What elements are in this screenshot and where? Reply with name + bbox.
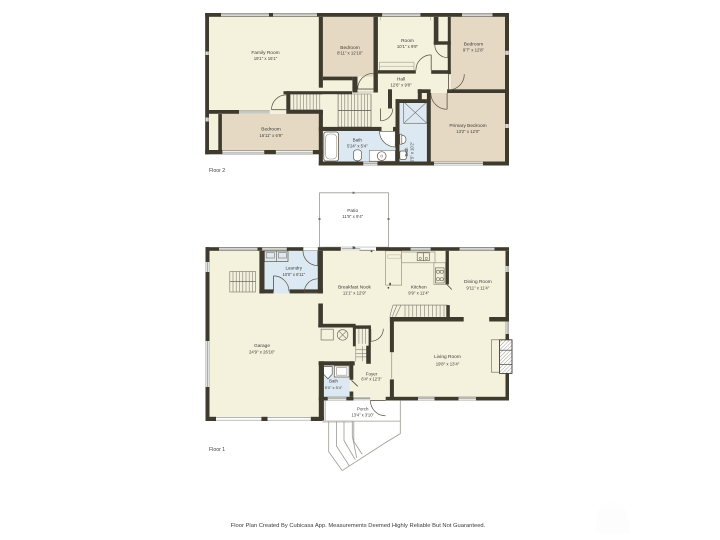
svg-text:12'6" x 9'8": 12'6" x 9'8" bbox=[390, 82, 412, 87]
svg-text:Dining Room: Dining Room bbox=[464, 279, 492, 285]
svg-text:Living Room: Living Room bbox=[434, 354, 461, 360]
svg-text:5'5" x 10'2": 5'5" x 10'2" bbox=[409, 141, 414, 162]
svg-text:Family Room: Family Room bbox=[251, 50, 279, 56]
svg-text:19'1" x 16'1": 19'1" x 16'1" bbox=[254, 56, 278, 61]
svg-text:11'1" x 12'9": 11'1" x 12'9" bbox=[343, 290, 367, 295]
svg-text:13'2" x 12'0": 13'2" x 12'0" bbox=[456, 129, 480, 134]
svg-text:Garage: Garage bbox=[254, 343, 270, 349]
svg-text:9'11" x 11'4": 9'11" x 11'4" bbox=[466, 286, 489, 291]
svg-text:19'8" x 13'4": 19'8" x 13'4" bbox=[436, 361, 460, 366]
svg-text:Floor 2: Floor 2 bbox=[209, 168, 225, 174]
svg-text:13'4" x 3'10": 13'4" x 3'10" bbox=[351, 412, 374, 417]
svg-text:Bath: Bath bbox=[353, 138, 363, 143]
svg-text:9'9" x 11'4": 9'9" x 11'4" bbox=[408, 290, 429, 295]
svg-text:6'4" x 12'3": 6'4" x 12'3" bbox=[361, 376, 382, 381]
svg-text:8'11" x 12'10": 8'11" x 12'10" bbox=[337, 51, 363, 56]
svg-text:Kitchen: Kitchen bbox=[411, 284, 427, 290]
svg-text:Breakfast Nook: Breakfast Nook bbox=[338, 284, 371, 290]
svg-text:24'9" x 26'10": 24'9" x 26'10" bbox=[249, 350, 275, 355]
svg-text:5'0" x 5'4": 5'0" x 5'4" bbox=[325, 385, 343, 390]
svg-text:5'24" x 5'4": 5'24" x 5'4" bbox=[347, 144, 368, 149]
svg-text:10'0" x 6'11": 10'0" x 6'11" bbox=[282, 272, 305, 277]
svg-text:Laundry: Laundry bbox=[285, 265, 302, 270]
svg-text:9'7" x 12'8": 9'7" x 12'8" bbox=[463, 47, 485, 52]
svg-text:Floor Plan Created By Cubicasa: Floor Plan Created By Cubicasa App. Meas… bbox=[231, 523, 486, 529]
svg-text:Bath: Bath bbox=[329, 379, 338, 384]
svg-text:Bath: Bath bbox=[404, 147, 409, 157]
svg-text:10'1" x 9'9": 10'1" x 9'9" bbox=[397, 44, 419, 49]
svg-text:16'11" x 6'9": 16'11" x 6'9" bbox=[259, 133, 283, 138]
svg-text:Floor 1: Floor 1 bbox=[209, 447, 225, 453]
svg-text:Bedroom: Bedroom bbox=[261, 127, 280, 133]
svg-text:11'9" x 9'4": 11'9" x 9'4" bbox=[342, 214, 363, 219]
svg-text:Porch: Porch bbox=[357, 407, 369, 412]
